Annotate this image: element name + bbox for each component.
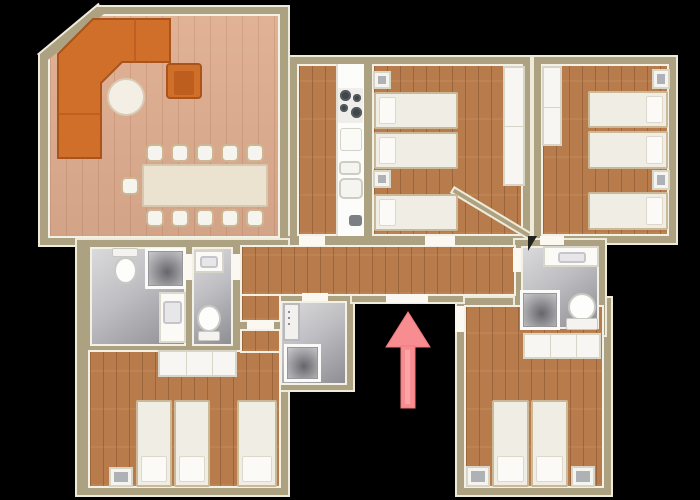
- single-bed: [492, 400, 529, 487]
- dining-chair: [246, 209, 264, 227]
- nightstand: [652, 170, 670, 190]
- single-bed: [374, 194, 458, 231]
- dining-chair: [146, 144, 164, 162]
- toilet: [568, 293, 596, 321]
- single-bed: [237, 400, 277, 487]
- dining-chair-head: [121, 177, 139, 195]
- stove-burner: [340, 104, 348, 112]
- shower-room-door-gap: [302, 293, 328, 301]
- dining-chair: [171, 209, 189, 227]
- bathroom-left-large-door-gap: [184, 254, 192, 280]
- stove-burner: [340, 90, 351, 101]
- single-bed: [174, 400, 210, 487]
- single-bed: [588, 131, 668, 169]
- stove-burner: [353, 94, 361, 102]
- hallway-floor: [240, 245, 516, 296]
- single-bed: [136, 400, 172, 487]
- toilet-tank: [198, 331, 220, 341]
- kitchen-sink-small: [339, 161, 361, 175]
- nightstand: [571, 466, 595, 487]
- single-bed: [588, 91, 668, 128]
- washbasin: [163, 301, 182, 324]
- bathroom-left-small-door-gap: [231, 254, 240, 280]
- toilet: [197, 305, 221, 332]
- nightstand: [373, 71, 391, 89]
- nightstand: [652, 69, 670, 89]
- bedroom-bottom-left-door-gap: [247, 320, 274, 329]
- dining-chair: [146, 209, 164, 227]
- kitchen-door-gap: [299, 236, 325, 246]
- single-bed: [588, 192, 668, 230]
- wardrobe: [158, 350, 237, 377]
- washbasin: [194, 250, 224, 273]
- entrance-door-gap: [386, 294, 428, 303]
- armchair-seat: [174, 71, 194, 95]
- water-heater: [283, 303, 300, 341]
- kitchen-appliance: [340, 128, 362, 151]
- dining-chair: [196, 144, 214, 162]
- door-swing-marker: [528, 236, 537, 251]
- dining-chair: [246, 144, 264, 162]
- bathroom-right-door-gap: [513, 248, 521, 272]
- dining-chair: [221, 209, 239, 227]
- bedroom-center-door-gap: [425, 236, 455, 246]
- dining-table: [142, 164, 268, 207]
- hallway-floor-branch: [240, 294, 281, 322]
- armchair: [166, 63, 202, 99]
- wardrobe: [542, 66, 562, 146]
- nightstand: [466, 466, 490, 487]
- shower: [520, 290, 560, 330]
- floor-plan: [0, 0, 700, 500]
- dining-chair: [171, 144, 189, 162]
- shower: [145, 248, 186, 289]
- toilet-tank: [112, 248, 138, 257]
- bedroom-bottom-right-door-gap: [455, 306, 464, 332]
- dresser: [523, 333, 601, 359]
- kitchen-faucet: [349, 215, 362, 226]
- nightstand: [109, 467, 133, 487]
- kitchen-sink-main: [339, 178, 363, 199]
- shower: [284, 344, 321, 382]
- single-bed: [374, 92, 458, 129]
- toilet-tank: [566, 318, 598, 330]
- dining-chair: [196, 209, 214, 227]
- washbasin-counter: [543, 246, 599, 267]
- wardrobe: [503, 66, 525, 186]
- top-right-room-door-gap: [540, 236, 564, 245]
- round-coffee-table: [107, 78, 145, 116]
- bedroom-bottom-left-floor-ext: [240, 329, 281, 353]
- toilet: [114, 257, 137, 284]
- nightstand: [373, 170, 391, 188]
- single-bed: [531, 400, 568, 487]
- entrance-arrow-icon: [380, 308, 436, 412]
- single-bed: [374, 132, 458, 169]
- stove-burner: [351, 107, 362, 118]
- dining-chair: [221, 144, 239, 162]
